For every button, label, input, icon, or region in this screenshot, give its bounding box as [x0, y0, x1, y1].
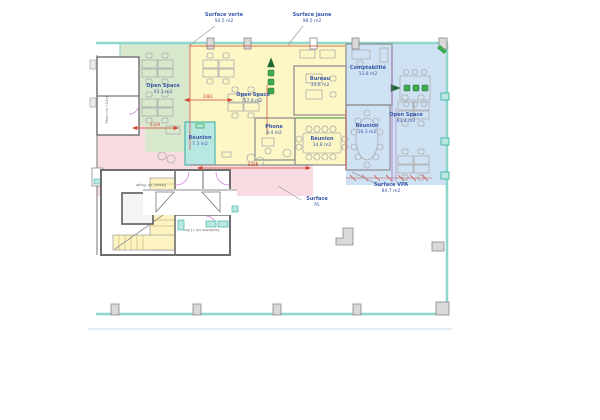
floor-plan: Surface verte 50.5 m2 Surface jaune 98.5…	[0, 0, 600, 420]
entrance-doors	[143, 189, 238, 215]
floor-plan-drawing	[0, 0, 600, 420]
